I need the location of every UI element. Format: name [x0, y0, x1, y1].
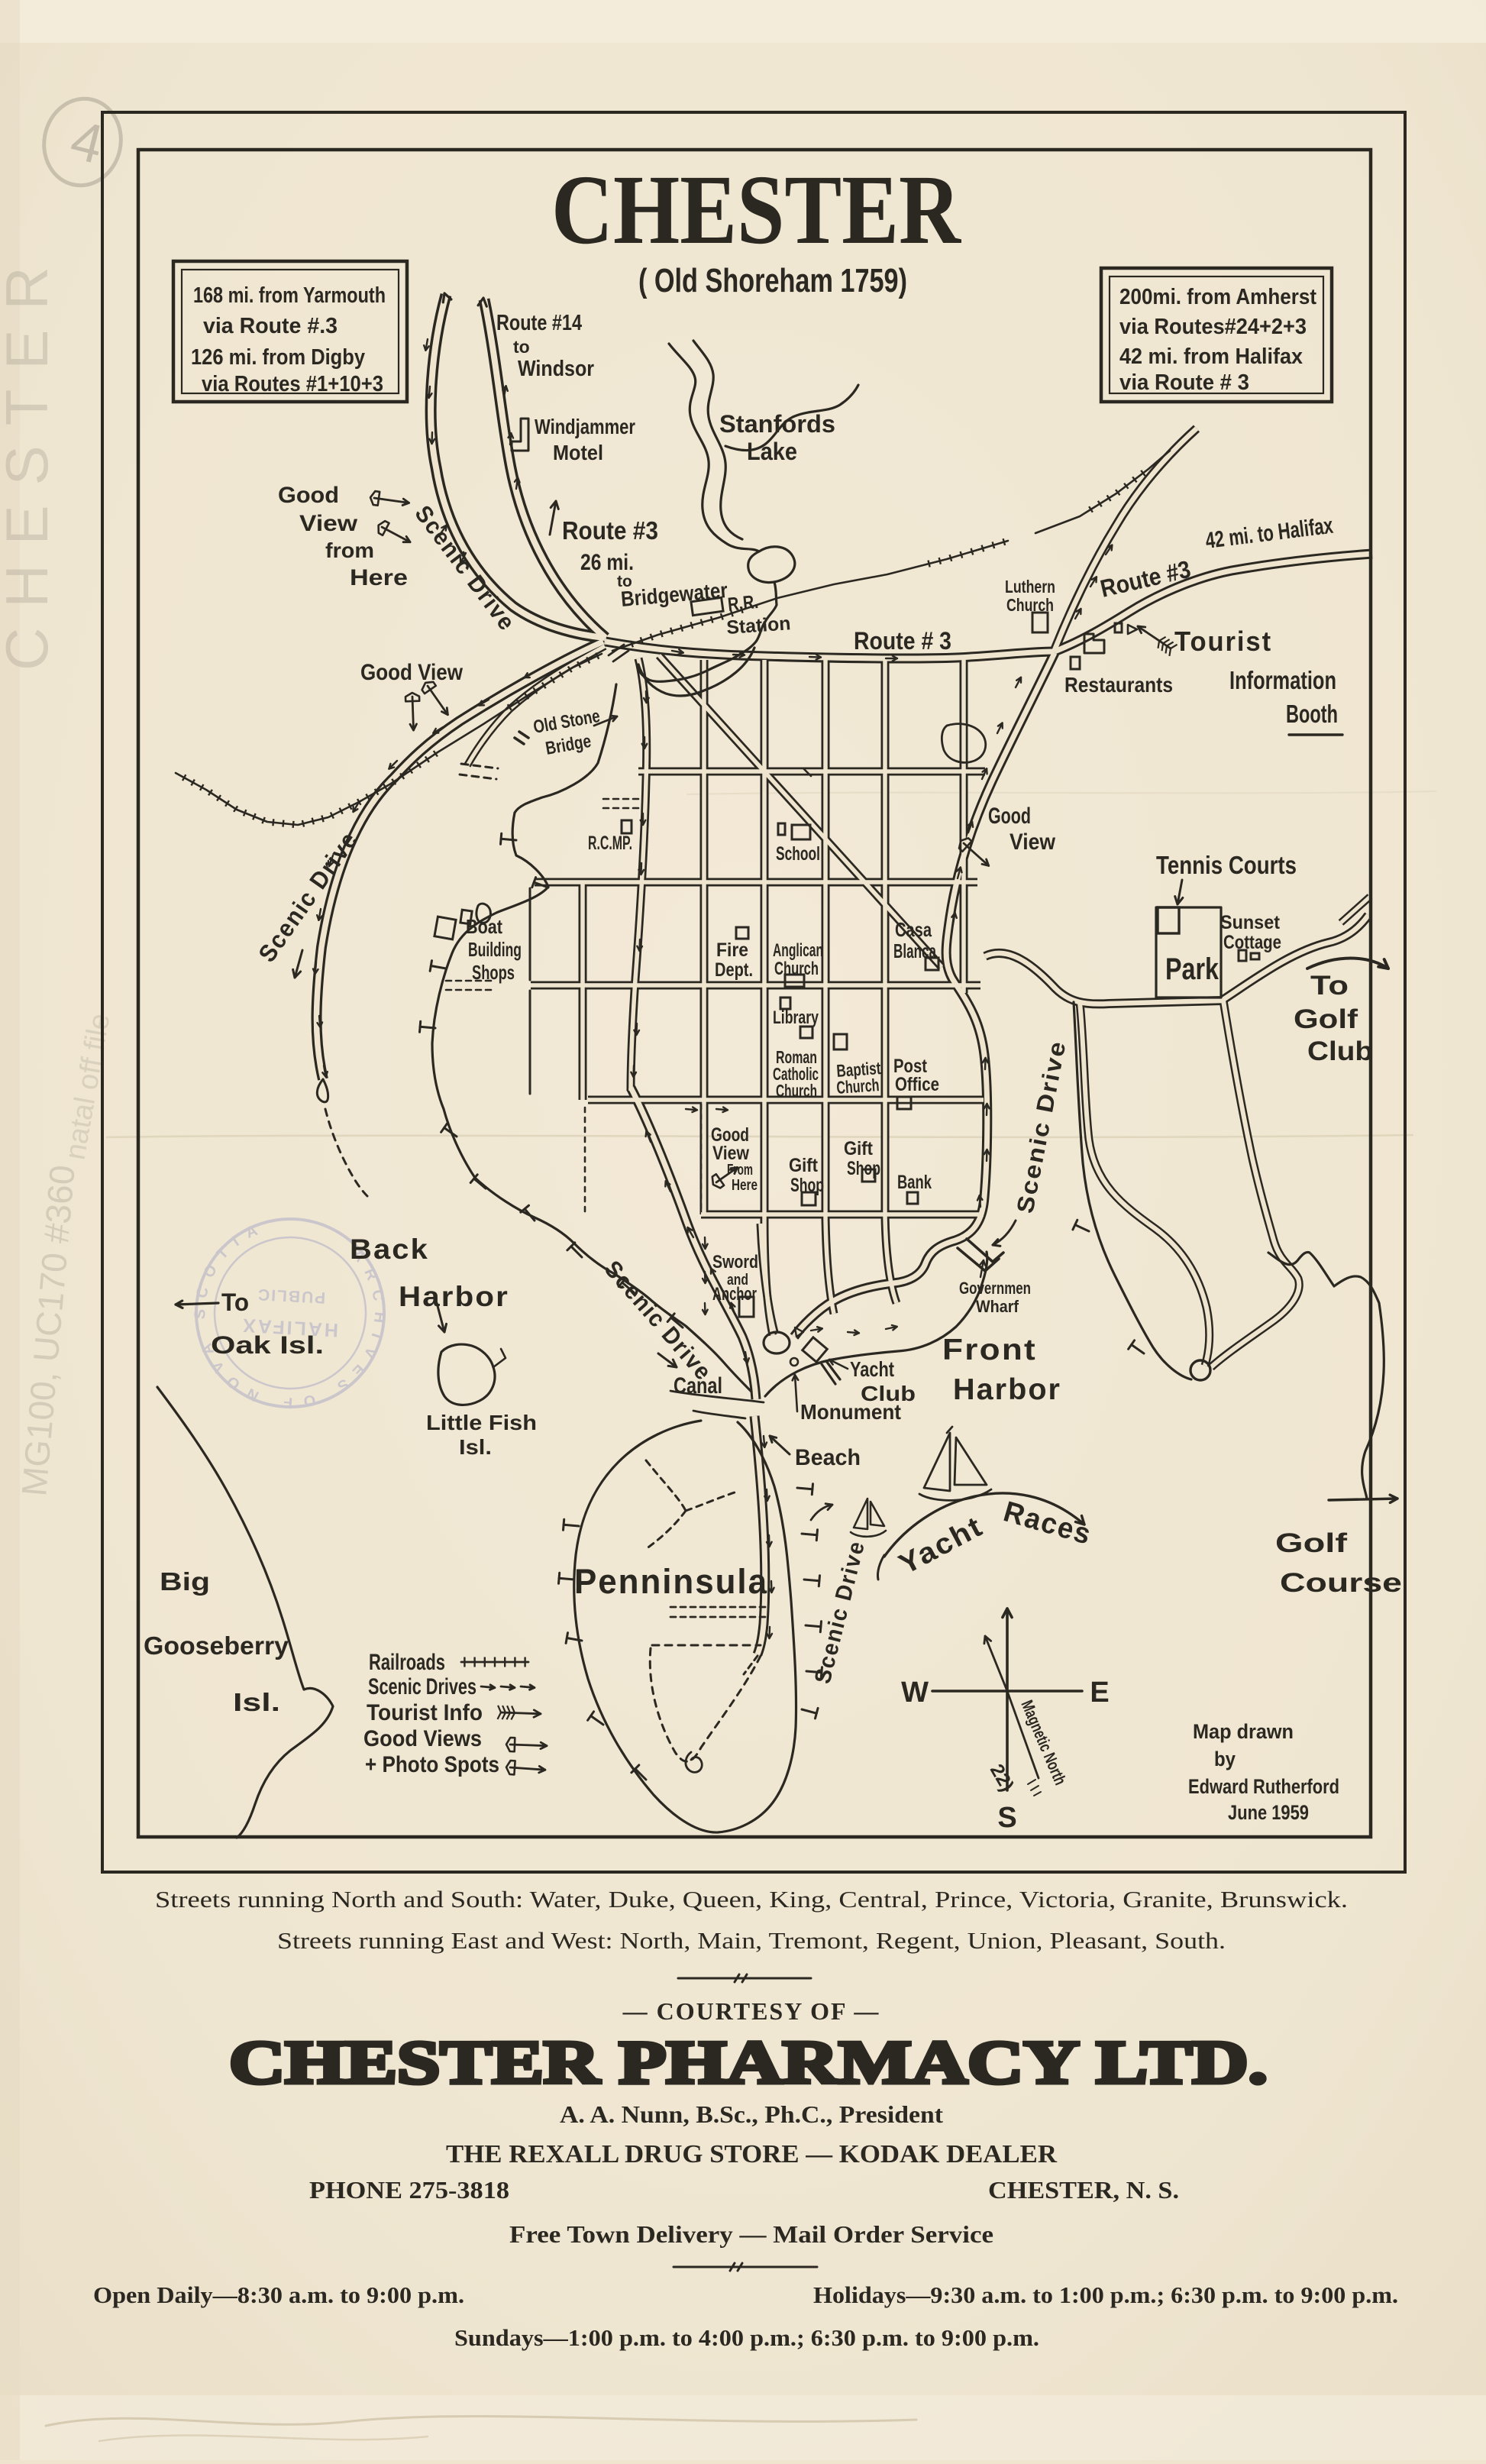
svg-text:Wharf: Wharf — [976, 1297, 1019, 1316]
svg-text:Isl.: Isl. — [459, 1435, 492, 1459]
svg-text:Building: Building — [468, 938, 522, 961]
svg-text:Streets running North and Sout: Streets running North and South: Water, … — [155, 1886, 1348, 1913]
svg-text:Lake: Lake — [747, 438, 797, 465]
svg-text:Course: Course — [1280, 1568, 1402, 1598]
svg-text:Gift: Gift — [844, 1138, 874, 1159]
svg-text:Streets running East and West:: Streets running East and West: North, Ma… — [277, 1927, 1226, 1954]
svg-text:R.C.MP.: R.C.MP. — [588, 833, 632, 854]
svg-text:Penninsula: Penninsula — [574, 1562, 768, 1601]
svg-text:Good: Good — [988, 804, 1031, 829]
svg-text:School: School — [776, 843, 820, 865]
svg-text:Club: Club — [861, 1382, 916, 1405]
svg-text:42 mi. from Halifax: 42 mi. from Halifax — [1119, 344, 1303, 369]
svg-text:via Routes #1+10+3: via Routes #1+10+3 — [202, 372, 383, 396]
svg-text:Here: Here — [732, 1177, 758, 1194]
svg-text:CHESTER PHARMACY LTD.: CHESTER PHARMACY LTD. — [229, 2029, 1268, 2097]
svg-text:168 mi. from Yarmouth: 168 mi. from Yarmouth — [193, 283, 386, 308]
svg-text:Canal: Canal — [674, 1373, 722, 1399]
svg-text:Office: Office — [895, 1074, 939, 1095]
svg-text:Harbor: Harbor — [953, 1373, 1061, 1406]
svg-text:Shop: Shop — [847, 1158, 880, 1179]
svg-text:Front: Front — [942, 1334, 1037, 1366]
svg-text:Booth: Booth — [1286, 700, 1338, 728]
svg-text:From: From — [727, 1162, 753, 1179]
svg-text:Scenic Drives: Scenic Drives — [368, 1674, 476, 1699]
svg-text:W: W — [901, 1677, 929, 1709]
svg-text:Station: Station — [725, 613, 791, 639]
svg-text:Route #14: Route #14 — [496, 311, 582, 335]
svg-text:( Old Shoreham 1759): ( Old Shoreham 1759) — [638, 262, 907, 299]
svg-text:Sunset: Sunset — [1220, 912, 1281, 933]
svg-text:via Route # 3: via Route # 3 — [1119, 370, 1249, 395]
svg-text:via Route #.3: via Route #.3 — [203, 314, 338, 338]
svg-text:Route # 3: Route # 3 — [854, 627, 951, 655]
svg-text:Fire: Fire — [716, 939, 748, 961]
svg-text:Oak Isl.: Oak Isl. — [211, 1331, 324, 1359]
svg-text:Shops: Shops — [472, 961, 515, 984]
svg-text:26 mi.: 26 mi. — [580, 550, 634, 575]
svg-text:Motel: Motel — [553, 441, 603, 464]
svg-text:Luthern: Luthern — [1005, 577, 1055, 597]
svg-text:Church: Church — [1006, 595, 1054, 615]
svg-text:to: to — [513, 337, 530, 357]
svg-text:R.R.: R.R. — [727, 591, 760, 616]
svg-text:Restaurants: Restaurants — [1064, 673, 1173, 697]
svg-text:CHESTER: CHESTER — [551, 155, 962, 265]
svg-text:Information: Information — [1229, 666, 1336, 694]
svg-text:Club: Club — [1307, 1036, 1373, 1066]
svg-text:Anchor: Anchor — [712, 1284, 757, 1305]
svg-text:Golf: Golf — [1294, 1004, 1358, 1034]
svg-text:via Routes#24+2+3: via Routes#24+2+3 — [1119, 315, 1307, 339]
svg-text:Good View: Good View — [360, 660, 464, 685]
svg-text:Stanfords: Stanfords — [719, 410, 835, 438]
svg-text:June 1959: June 1959 — [1228, 1801, 1309, 1824]
svg-text:Beach: Beach — [795, 1445, 861, 1470]
svg-text:Cottage: Cottage — [1223, 932, 1281, 953]
svg-text:View: View — [299, 511, 358, 536]
svg-text:Free Town Delivery — Mail Or: Free Town Delivery — Mail Order Service — [509, 2220, 993, 2248]
svg-text:Anglican: Anglican — [773, 940, 823, 961]
svg-text:CHESTER: CHESTER — [0, 247, 60, 671]
svg-text:Gooseberry: Gooseberry — [144, 1631, 289, 1660]
svg-text:Bank: Bank — [897, 1172, 932, 1193]
svg-text:Library: Library — [773, 1007, 819, 1028]
svg-text:S: S — [997, 1802, 1016, 1834]
svg-text:Church: Church — [836, 1075, 880, 1098]
svg-text:Golf: Golf — [1275, 1528, 1347, 1558]
svg-text:Casa: Casa — [895, 918, 932, 941]
svg-text:Big: Big — [160, 1567, 210, 1596]
svg-text:Park: Park — [1165, 952, 1219, 986]
svg-text:PUBLIC: PUBLIC — [257, 1285, 326, 1307]
svg-text:To: To — [221, 1289, 249, 1316]
svg-text:Tourist Info: Tourist Info — [367, 1700, 483, 1725]
svg-text:Open Daily—8:30 a.m. to 9:00 p: Open Daily—8:30 a.m. to 9:00 p.m. — [93, 2281, 464, 2308]
svg-text:126 mi. from Digby: 126 mi. from Digby — [191, 345, 365, 370]
svg-text:— COURTESY OF —: — COURTESY OF — — [622, 1997, 880, 2025]
svg-text:PHONE 275-3818: PHONE 275-3818 — [309, 2176, 509, 2204]
svg-text:Edward Rutherford: Edward Rutherford — [1188, 1775, 1339, 1798]
svg-text:Windjammer: Windjammer — [535, 415, 635, 438]
svg-text:Railroads: Railroads — [369, 1650, 445, 1675]
svg-text:A. A. Nunn, B.Sc., Ph.C., Pres: A. A. Nunn, B.Sc., Ph.C., President — [560, 2100, 943, 2128]
svg-text:200mi. from Amherst: 200mi. from Amherst — [1119, 285, 1316, 309]
svg-text:Good: Good — [278, 483, 339, 508]
svg-text:Tennis Courts: Tennis Courts — [1156, 851, 1297, 879]
svg-text:Route #3: Route #3 — [562, 516, 658, 545]
svg-text:Isl.: Isl. — [233, 1688, 280, 1716]
svg-text:Sword: Sword — [712, 1252, 758, 1272]
svg-text:Holidays—9:30 a.m. to 1:00 p.m: Holidays—9:30 a.m. to 1:00 p.m.; 6:30 p.… — [813, 2281, 1398, 2308]
svg-text:Dept.: Dept. — [715, 959, 753, 981]
svg-text:Sundays—1:00 p.m. to 4:00 p.m.: Sundays—1:00 p.m. to 4:00 p.m.; 6:30 p.m… — [454, 2324, 1039, 2351]
svg-text:Back: Back — [350, 1234, 429, 1265]
svg-text:Shop: Shop — [790, 1175, 824, 1196]
svg-text:To: To — [1310, 971, 1349, 1001]
svg-text:Tourist: Tourist — [1174, 626, 1272, 657]
svg-text:by: by — [1214, 1748, 1236, 1770]
svg-text:Windsor: Windsor — [518, 357, 594, 381]
svg-text:E: E — [1090, 1677, 1109, 1709]
svg-text:Boat: Boat — [466, 915, 502, 938]
svg-text:from: from — [325, 538, 374, 562]
svg-text:View: View — [712, 1143, 749, 1164]
svg-text:+ Photo Spots: + Photo Spots — [365, 1752, 499, 1777]
svg-text:Here: Here — [350, 565, 408, 590]
svg-text:THE REXALL DRUG STORE — KODAK: THE REXALL DRUG STORE — KODAK DEALER — [446, 2140, 1057, 2168]
svg-text:Harbor: Harbor — [399, 1281, 509, 1312]
svg-text:Map drawn: Map drawn — [1193, 1720, 1294, 1743]
svg-text:Church: Church — [774, 959, 819, 979]
svg-text:Gift: Gift — [789, 1155, 819, 1176]
svg-text:Good Views: Good Views — [363, 1726, 482, 1751]
svg-text:Yacht: Yacht — [850, 1357, 894, 1381]
svg-text:CHESTER, N. S.: CHESTER, N. S. — [988, 2176, 1179, 2204]
svg-text:Little Fish: Little Fish — [426, 1411, 537, 1434]
svg-text:Governmen: Governmen — [959, 1279, 1031, 1298]
svg-text:Blanca: Blanca — [893, 939, 936, 962]
svg-text:Church: Church — [776, 1081, 817, 1101]
svg-text:View: View — [1010, 829, 1056, 855]
